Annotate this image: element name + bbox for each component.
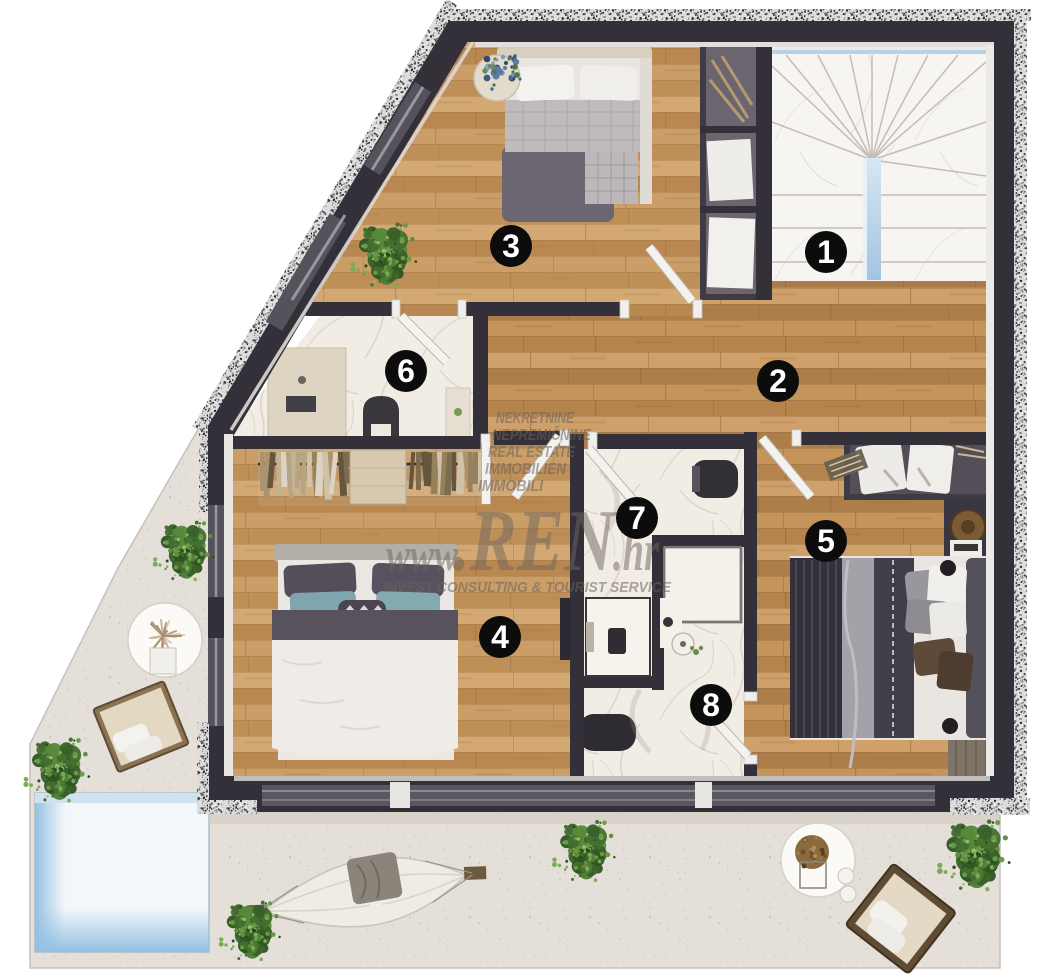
svg-text:REAL ESTATE: REAL ESTATE bbox=[488, 444, 576, 461]
svg-text:1: 1 bbox=[817, 234, 835, 270]
svg-text:2: 2 bbox=[769, 363, 787, 399]
svg-text:NEKRETNINE: NEKRETNINE bbox=[496, 410, 575, 427]
svg-text:7: 7 bbox=[628, 500, 646, 536]
svg-text:4: 4 bbox=[491, 619, 509, 655]
svg-text:IMMOBILIEN: IMMOBILIEN bbox=[485, 461, 567, 478]
svg-text:3: 3 bbox=[502, 228, 520, 264]
svg-text:NEPREMIČNINE: NEPREMIČNINE bbox=[492, 426, 592, 444]
svg-text:www: www bbox=[386, 529, 458, 580]
svg-text:6: 6 bbox=[397, 353, 415, 389]
svg-text:.REN: .REN bbox=[452, 493, 618, 590]
svg-text:8: 8 bbox=[702, 687, 720, 723]
svg-text:5: 5 bbox=[817, 523, 835, 559]
svg-text:INVEST CONSULTING & TOURIST SE: INVEST CONSULTING & TOURIST SERVICE bbox=[383, 579, 672, 596]
